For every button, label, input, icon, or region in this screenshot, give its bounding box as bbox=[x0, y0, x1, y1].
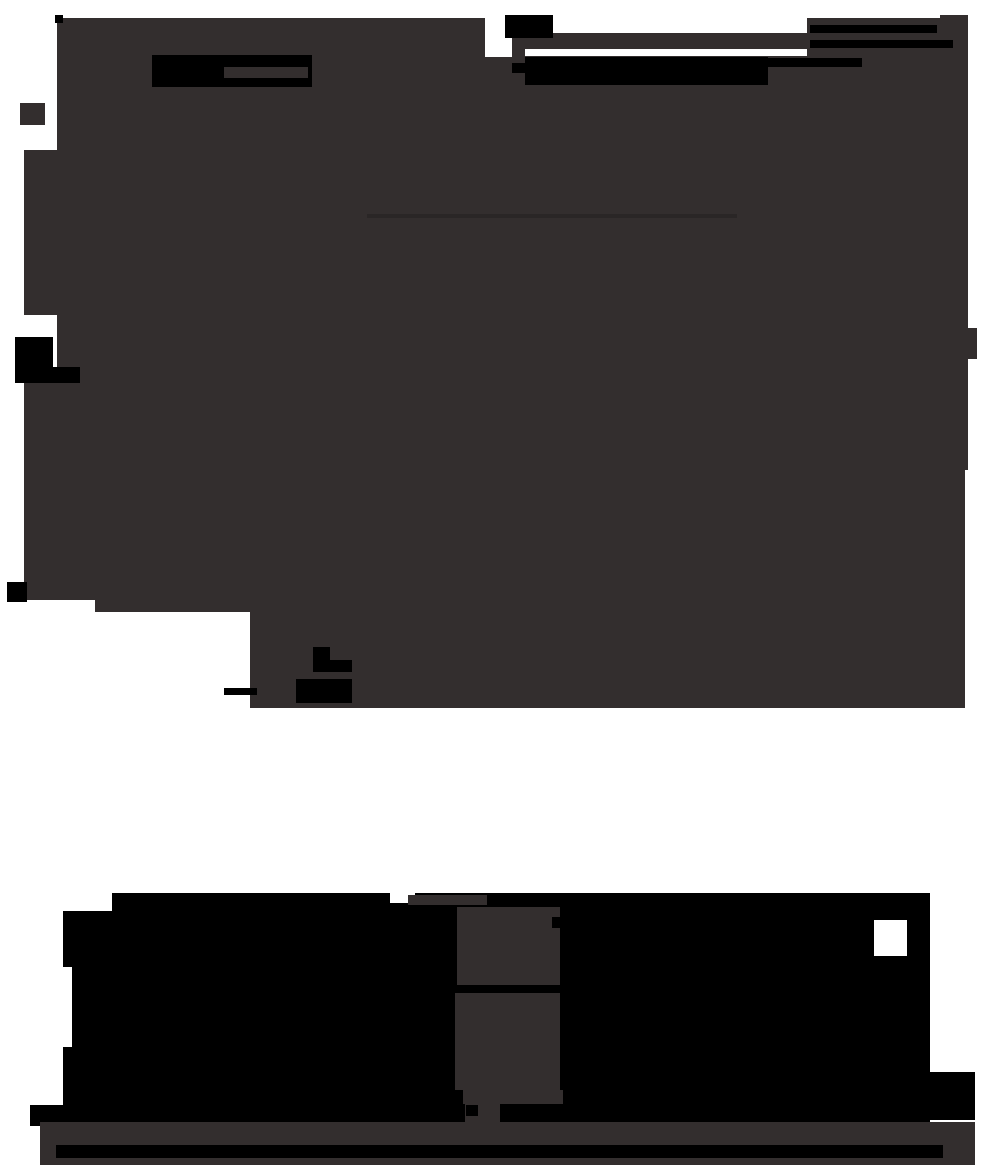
mid-t-black-mark bbox=[466, 1105, 478, 1116]
bottom-bar-strip bbox=[56, 1145, 943, 1158]
blob-right-column bbox=[940, 15, 968, 470]
blob-right-lower bbox=[940, 470, 965, 708]
notch-top-center-wide bbox=[553, 18, 807, 33]
notch-letter-right-edge bbox=[874, 920, 907, 956]
mid-gray-strip bbox=[408, 895, 487, 905]
blob-left-column-lower bbox=[24, 383, 57, 600]
logo-inset bbox=[224, 67, 308, 78]
nav-bar-block bbox=[525, 57, 768, 85]
glyph-l-nub bbox=[313, 647, 330, 660]
blob-left-column-upper bbox=[24, 150, 57, 315]
blob-corner-square bbox=[20, 103, 45, 125]
notch-bottom-left-1 bbox=[24, 600, 95, 710]
top-line-2 bbox=[810, 40, 953, 48]
bottom-bar bbox=[40, 1122, 975, 1165]
letter-left-block bbox=[63, 893, 455, 1126]
glyph-block bbox=[296, 679, 352, 703]
mid-black-nub bbox=[552, 917, 560, 928]
canvas bbox=[0, 0, 982, 1165]
mid-gray-t-piece bbox=[463, 1090, 563, 1104]
notch-bottom-left-2 bbox=[95, 612, 250, 710]
blob-base bbox=[57, 18, 940, 708]
mid-gray-block-2 bbox=[455, 993, 560, 1090]
top-black-piece bbox=[505, 15, 553, 38]
mid-gray-block-1 bbox=[457, 907, 560, 985]
nav-tail-line bbox=[768, 58, 862, 67]
letter-right-foot bbox=[860, 1072, 975, 1120]
nav-nub bbox=[512, 63, 525, 73]
glyph-l-bar bbox=[313, 660, 352, 672]
small-mark-top-left bbox=[55, 15, 63, 23]
blob-right-bump bbox=[960, 328, 977, 359]
glyph-dash bbox=[224, 688, 257, 695]
faint-interior-line bbox=[367, 214, 737, 218]
left-black-tab bbox=[15, 337, 53, 383]
notch-letter-left-edge bbox=[63, 967, 72, 1047]
left-black-tab-step bbox=[53, 367, 80, 383]
notch-letter-left-top bbox=[63, 893, 112, 911]
left-black-mark bbox=[7, 582, 27, 602]
notch-nav-gap bbox=[525, 49, 807, 56]
top-line-1 bbox=[810, 25, 937, 33]
